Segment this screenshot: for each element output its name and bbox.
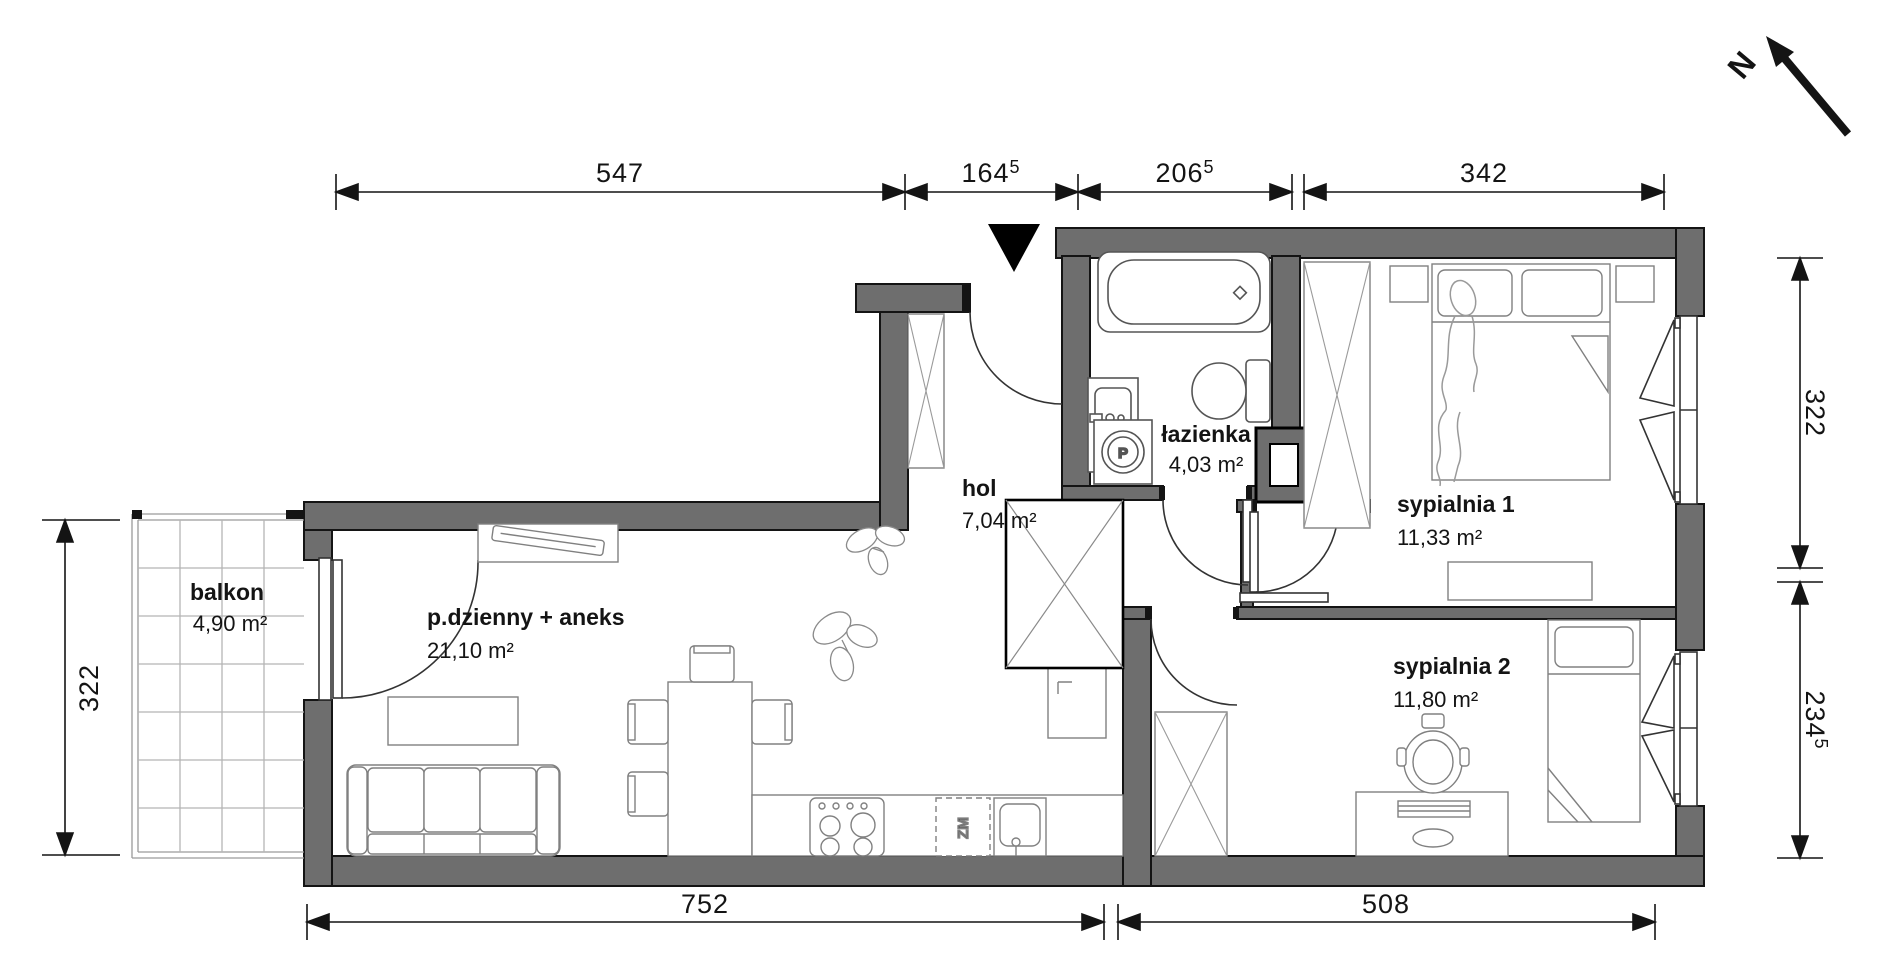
dim-left-322: 322 (74, 664, 104, 712)
floor-plan-svg: ZM (0, 0, 1900, 979)
wardrobe (1304, 262, 1370, 528)
room-name-sypialnia2: sypialnia 2 (1393, 653, 1511, 679)
wardrobe (1155, 712, 1227, 856)
bathtub-icon (1098, 252, 1270, 332)
toilet-icon (1192, 360, 1270, 422)
kitchen: ZM (752, 668, 1123, 856)
keyboard-icon (1398, 801, 1470, 817)
dim-top-206-5: 2065 (1155, 157, 1214, 188)
wall-right-mid (1676, 504, 1704, 650)
wall-hall-top-stub (856, 284, 970, 312)
wall-bath-left (1062, 256, 1090, 500)
curtain-icon (1640, 320, 1674, 406)
dresser (1448, 562, 1592, 600)
hall-wardrobe (908, 314, 944, 468)
room-area-living: 21,10 m² (427, 638, 514, 663)
room-area-sypialnia1: 11,33 m² (1397, 525, 1482, 550)
room-name-living: p.dzienny + aneks (427, 604, 625, 630)
balcony (132, 510, 304, 858)
wall-bath-bottom-left (1062, 486, 1163, 500)
mouse-icon (1413, 829, 1453, 847)
office-chair-icon (1397, 714, 1469, 793)
room-area-balkon: 4,90 m² (193, 611, 268, 636)
wall-bottom (304, 856, 1704, 886)
dimension-chain-left: 322 (42, 520, 120, 855)
dimension-chain-right: 322 2345 (1777, 258, 1831, 858)
nightstand (1616, 266, 1654, 302)
dim-top-342: 342 (1460, 158, 1508, 188)
balcony-tiles (138, 520, 304, 852)
wall-bed2-top (1237, 607, 1676, 619)
washer-label: P (1118, 445, 1128, 462)
sofa (347, 765, 560, 856)
curtain-icon (1640, 412, 1674, 500)
room-area-sypialnia2: 11,80 m² (1393, 687, 1478, 712)
wall-left-lower (304, 700, 332, 886)
curtain-icon (1642, 656, 1674, 728)
kitchen-cabinet (1048, 668, 1106, 738)
dining-chair (628, 700, 668, 744)
stove-icon (810, 798, 884, 856)
room-area-hol: 7,04 m² (962, 508, 1037, 533)
window-bedroom1 (1640, 316, 1697, 504)
room-area-lazienka: 4,03 m² (1169, 452, 1244, 477)
dim-top-164-5: 1645 (961, 157, 1020, 188)
sink-icon (994, 798, 1046, 856)
washing-machine-icon: P (1094, 420, 1152, 484)
plant-icon (807, 605, 880, 683)
desk (1356, 792, 1508, 856)
window-bedroom2 (1642, 652, 1697, 806)
dimension-chain-top: 547 1645 2065 342 (336, 157, 1664, 210)
room-name-lazienka: łazienka (1161, 421, 1251, 447)
dim-right-234-5: 2345 (1800, 690, 1831, 749)
living-furniture (347, 524, 792, 856)
entrance-marker-icon (988, 224, 1040, 272)
single-bed (1548, 620, 1640, 822)
sideboard (478, 524, 618, 562)
entrance-door (970, 312, 1062, 404)
curtain-icon (1642, 730, 1674, 802)
room-name-hol: hol (962, 475, 997, 501)
dining-chair (628, 772, 668, 816)
wall-bath-right (1272, 256, 1300, 430)
north-arrow-icon: N (1720, 36, 1848, 134)
wall-hall-left (880, 284, 908, 530)
dining-chair (690, 646, 734, 682)
room-name-sypialnia1: sypialnia 1 (1397, 491, 1515, 517)
bathroom-fixtures: P (1088, 252, 1270, 484)
floor-plan-page: ZM (0, 0, 1900, 979)
room-name-balkon: balkon (190, 579, 264, 605)
coffee-table (388, 697, 518, 745)
dishwasher-label: ZM (955, 817, 972, 839)
dining-table (668, 682, 752, 856)
dishwasher-icon: ZM (936, 798, 990, 856)
north-label: N (1720, 45, 1762, 86)
wall-kitchen-bed2 (1123, 619, 1151, 886)
dim-right-322: 322 (1800, 389, 1830, 437)
dimension-chain-bottom: 752 508 (307, 889, 1655, 940)
dim-bottom-752: 752 (681, 889, 729, 919)
dim-top-547: 547 (596, 158, 644, 188)
nightstand (1390, 266, 1428, 302)
double-bed (1432, 264, 1610, 480)
dim-bottom-508: 508 (1362, 889, 1410, 919)
dining-chair (752, 700, 792, 744)
wall-right-upper (1676, 228, 1704, 316)
